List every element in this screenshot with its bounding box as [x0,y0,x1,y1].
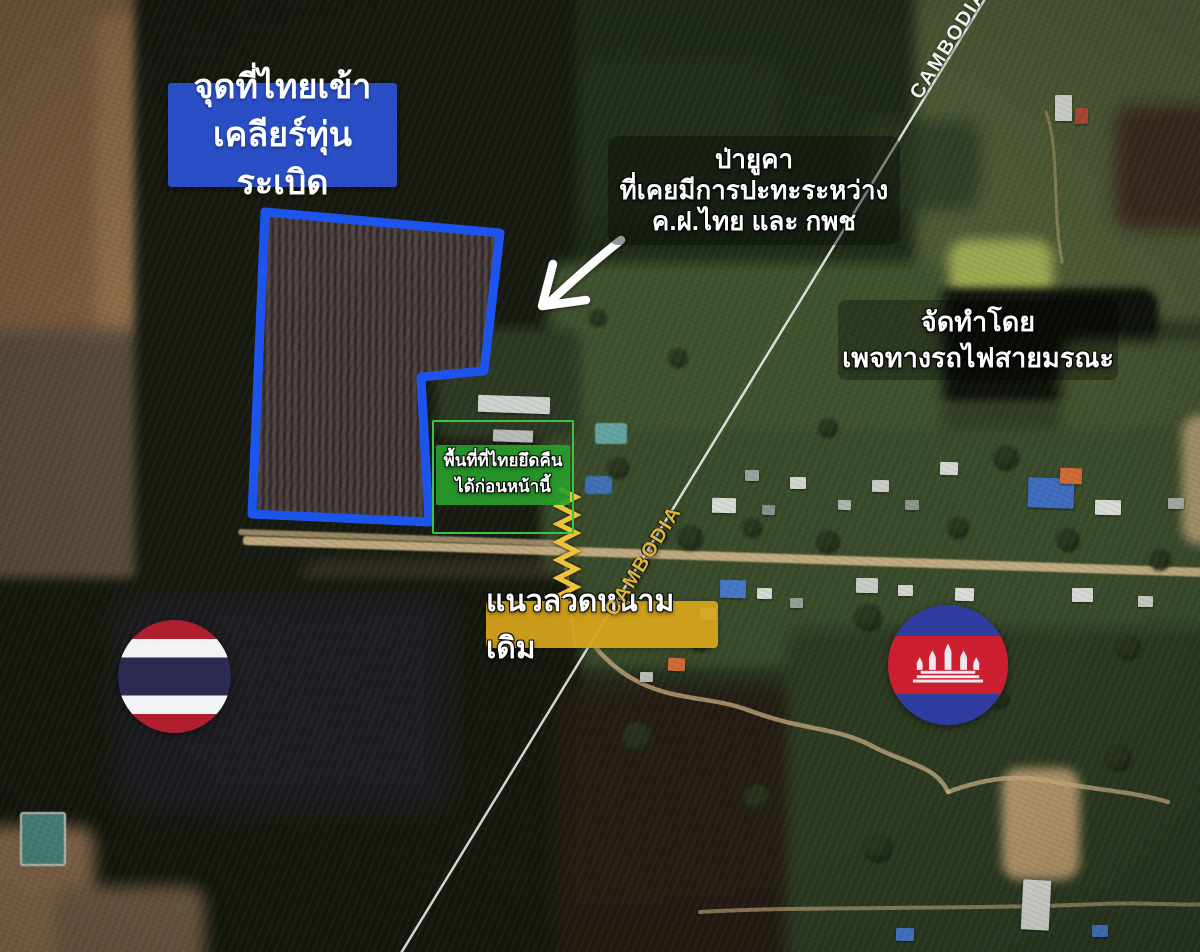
reclaimed-area-outline: พื้นที่ที่ไทยยึดคืน ได้ก่อนหน้านี้ [432,420,574,534]
building [478,395,551,415]
terrain-patch [55,886,205,952]
tree-cluster [818,418,838,438]
tree-cluster [589,309,607,327]
tree-cluster [816,530,840,554]
building [790,598,803,608]
building [745,470,759,481]
building [1095,500,1121,515]
thailand-flag [118,620,231,733]
tree-cluster [993,445,1019,471]
tree-cluster [622,722,654,754]
tree-cluster [947,517,969,539]
tree-cluster [744,784,772,812]
reclaimed-area-label: พื้นที่ที่ไทยยึดคืน ได้ก่อนหน้านี้ [436,445,570,505]
tree-cluster [668,348,688,368]
mine-clearing-label-line1: จุดที่ไทยเข้า [168,63,397,111]
building [712,498,736,513]
tree-cluster [854,604,882,632]
building [757,588,772,599]
credit-label: จัดทำโดย เพจทางรถไฟสายมรณะ [838,300,1118,380]
tree-cluster [677,525,703,551]
building [1092,925,1108,937]
pond [585,476,612,494]
clash-site-line3: ค.ฝ.ไทย และ กพช [608,206,900,237]
terrain-patch [1182,415,1200,545]
building [640,672,653,682]
building [790,477,806,489]
building [762,505,776,516]
credit-line2: เพจทางรถไฟสายมรณะ [838,340,1118,376]
annotated-satellite-map: จุดที่ไทยเข้า เคลียร์ทุ่นระเบิด ป่ายูคา … [0,0,1200,952]
tree-cluster [1056,528,1080,552]
building [872,480,889,492]
tree-cluster [742,518,762,538]
building [856,578,878,593]
building [1072,588,1093,602]
satellite-imagery: จุดที่ไทยเข้า เคลียร์ทุ่นระเบิด ป่ายูคา … [0,0,1200,952]
terrain-patch [1002,768,1080,880]
terrain-patch [1115,105,1200,230]
building [1075,108,1088,124]
building [905,500,919,510]
clash-site-line1: ป่ายูคา [608,144,900,175]
clash-site-label: ป่ายูคา ที่เคยมีการปะทะระหว่าง ค.ฝ.ไทย แ… [608,136,900,245]
building [1060,468,1083,485]
angkor-wat-emblem [909,642,987,686]
mine-clearing-label: จุดที่ไทยเข้า เคลียร์ทุ่นระเบิด [168,83,397,187]
tree-cluster [607,457,629,479]
tree-cluster [1149,549,1171,571]
reclaimed-area-line1: พื้นที่ที่ไทยยึดคืน [436,448,570,474]
tree-cluster [1104,744,1132,772]
building [720,580,747,599]
building [940,462,958,476]
building [838,500,851,510]
building [898,585,913,596]
barbed-wire-label-text: แนวลวดหนามเดิม [486,578,718,672]
clash-site-line2: ที่เคยมีการปะทะระหว่าง [608,175,900,206]
credit-line1: จัดทำโดย [838,304,1118,340]
mine-clearing-label-line2: เคลียร์ทุ่นระเบิด [168,111,397,207]
cambodia-flag [888,605,1008,725]
tree-cluster [863,833,893,863]
building [1021,879,1052,930]
building [1138,596,1153,607]
tree-cluster [1115,635,1141,661]
reclaimed-area-line2: ได้ก่อนหน้านี้ [436,474,570,500]
building [1055,95,1072,121]
pond [595,423,627,444]
building [955,588,974,602]
building [896,928,914,941]
building [1168,498,1184,509]
pond [20,812,66,866]
